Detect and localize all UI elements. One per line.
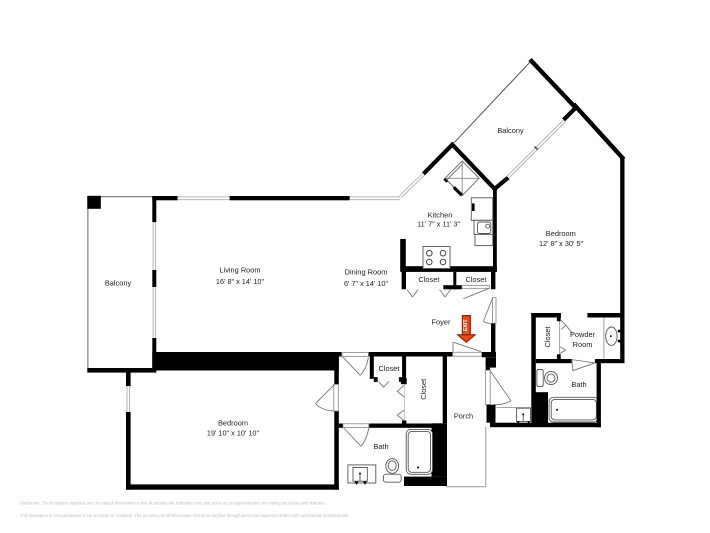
svg-text:Living Room: Living Room [219,266,260,275]
svg-text:This illustration is not guara: This illustration is not guaranteed to b… [20,513,349,518]
svg-text:Closet: Closet [379,364,400,373]
svg-text:Disclaimer: The floorplans dep: Disclaimer: The floorplans depicted and … [20,501,326,506]
svg-text:Closet: Closet [419,379,428,400]
svg-text:6' 7" x 14' 10": 6' 7" x 14' 10" [344,279,388,288]
svg-text:16' 8" x 14' 10": 16' 8" x 14' 10" [216,277,265,286]
svg-text:Powder: Powder [570,330,596,339]
svg-text:Porch: Porch [454,412,473,421]
svg-text:Closet: Closet [543,327,552,348]
svg-text:Room: Room [573,340,593,349]
svg-text:12' 8" x 30' 5": 12' 8" x 30' 5" [539,239,583,248]
svg-text:Closet: Closet [466,275,487,284]
svg-text:Bath: Bath [571,380,586,389]
svg-text:Balcony: Balcony [105,279,132,288]
svg-text:Balcony: Balcony [497,126,524,135]
svg-text:11' 7" x 11' 3": 11' 7" x 11' 3" [417,219,460,228]
svg-text:Bedroom: Bedroom [546,229,576,238]
svg-text:Bedroom: Bedroom [218,419,248,428]
svg-text:Bath: Bath [373,442,388,451]
svg-text:Dining Room: Dining Room [345,268,388,277]
svg-text:Foyer: Foyer [432,318,451,327]
svg-text:Closet: Closet [418,275,439,284]
svg-text:Kitchen: Kitchen [428,210,453,219]
svg-text:19' 10" x 10' 10": 19' 10" x 10' 10" [207,429,260,438]
svg-text:EXIT: EXIT [463,319,469,332]
